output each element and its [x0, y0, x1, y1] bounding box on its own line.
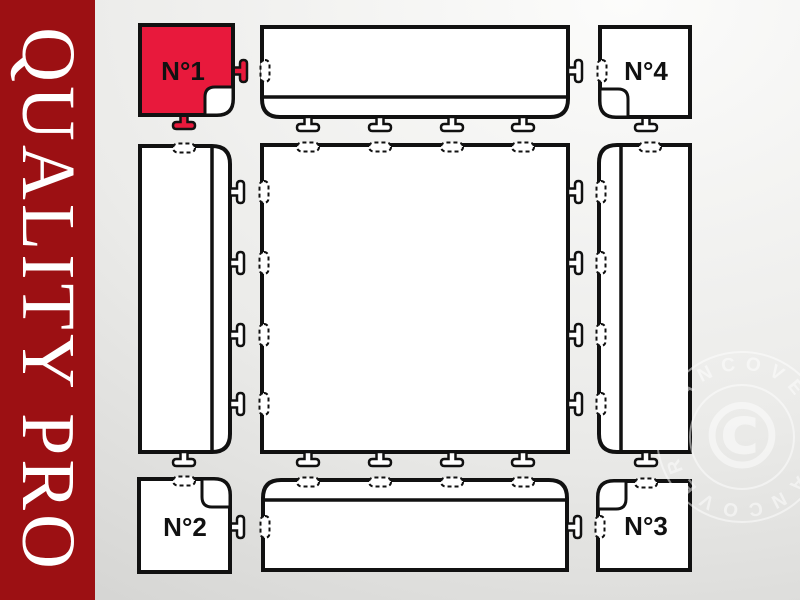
center-tile	[260, 143, 583, 467]
quality-pro-banner: QUALITY PRO	[0, 0, 95, 600]
connector-slot	[596, 516, 605, 538]
corner-tile-label: N°4	[624, 56, 668, 86]
corner-notch	[598, 481, 626, 509]
connector-tab	[230, 516, 244, 538]
connector-slot	[369, 478, 391, 487]
connector-slot	[173, 144, 195, 153]
connector-slot	[260, 252, 269, 274]
connector-tab	[230, 181, 244, 203]
connector-tab	[230, 324, 244, 346]
connector-slot	[297, 143, 319, 152]
edge-piece-left-body	[140, 146, 230, 452]
connector-slot	[261, 60, 270, 82]
corner-tile-label: N°2	[163, 512, 207, 542]
corner-tile-label: N°1	[161, 56, 205, 86]
connector-tab	[441, 452, 463, 466]
connector-slot	[512, 143, 534, 152]
connector-slot	[597, 252, 606, 274]
edge-piece-top-body	[262, 27, 568, 117]
center-tile-body	[262, 145, 568, 452]
connector-tab	[230, 393, 244, 415]
connector-slot	[441, 143, 463, 152]
connector-tab	[568, 393, 582, 415]
edge-piece-top	[261, 27, 583, 131]
connector-slot	[260, 324, 269, 346]
connector-tab	[512, 117, 534, 131]
connector-tab	[173, 452, 195, 466]
connector-tab	[297, 452, 319, 466]
connector-slot	[597, 181, 606, 203]
assembly-diagram: N°1 N°4 N°2 N°3	[0, 0, 800, 600]
connector-slot	[369, 143, 391, 152]
connector-slot	[598, 60, 607, 82]
corner-tile-2: N°2	[139, 477, 244, 573]
connector-slot	[260, 181, 269, 203]
connector-tab	[233, 60, 247, 82]
connector-slot	[512, 478, 534, 487]
banner-text: QUALITY PRO	[0, 0, 95, 600]
connector-tab	[568, 324, 582, 346]
connector-tab	[441, 117, 463, 131]
copyright-icon: ©	[696, 384, 788, 491]
corner-notch	[202, 479, 230, 507]
connector-slot	[297, 478, 319, 487]
connector-tab	[512, 452, 534, 466]
corner-tile-label: N°3	[624, 511, 668, 541]
connector-slot	[173, 477, 195, 486]
connector-slot	[441, 478, 463, 487]
connector-tab	[568, 60, 582, 82]
corner-tile-1: N°1	[140, 25, 247, 129]
connector-tab	[568, 252, 582, 274]
connector-slot	[635, 479, 657, 488]
connector-tab	[635, 117, 657, 131]
connector-slot	[639, 143, 661, 152]
connector-tab	[635, 452, 657, 466]
connector-slot	[597, 324, 606, 346]
connector-tab	[568, 181, 582, 203]
connector-slot	[260, 393, 269, 415]
connector-slot	[261, 516, 270, 538]
corner-tile-4: N°4	[598, 27, 691, 131]
connector-tab	[230, 252, 244, 274]
corner-notch	[600, 89, 628, 117]
product-illustration: N°1 N°4 N°2 N°3	[0, 0, 800, 600]
corner-notch	[205, 87, 233, 115]
corner-tile-3: N°3	[596, 479, 691, 571]
edge-piece-bottom	[261, 478, 582, 571]
connector-tab	[369, 117, 391, 131]
connector-tab	[297, 117, 319, 131]
connector-tab	[567, 516, 581, 538]
connector-slot	[597, 393, 606, 415]
edge-piece-bottom-body	[263, 480, 567, 570]
edge-piece-left	[140, 144, 244, 467]
connector-tab	[173, 115, 195, 129]
connector-tab	[369, 452, 391, 466]
